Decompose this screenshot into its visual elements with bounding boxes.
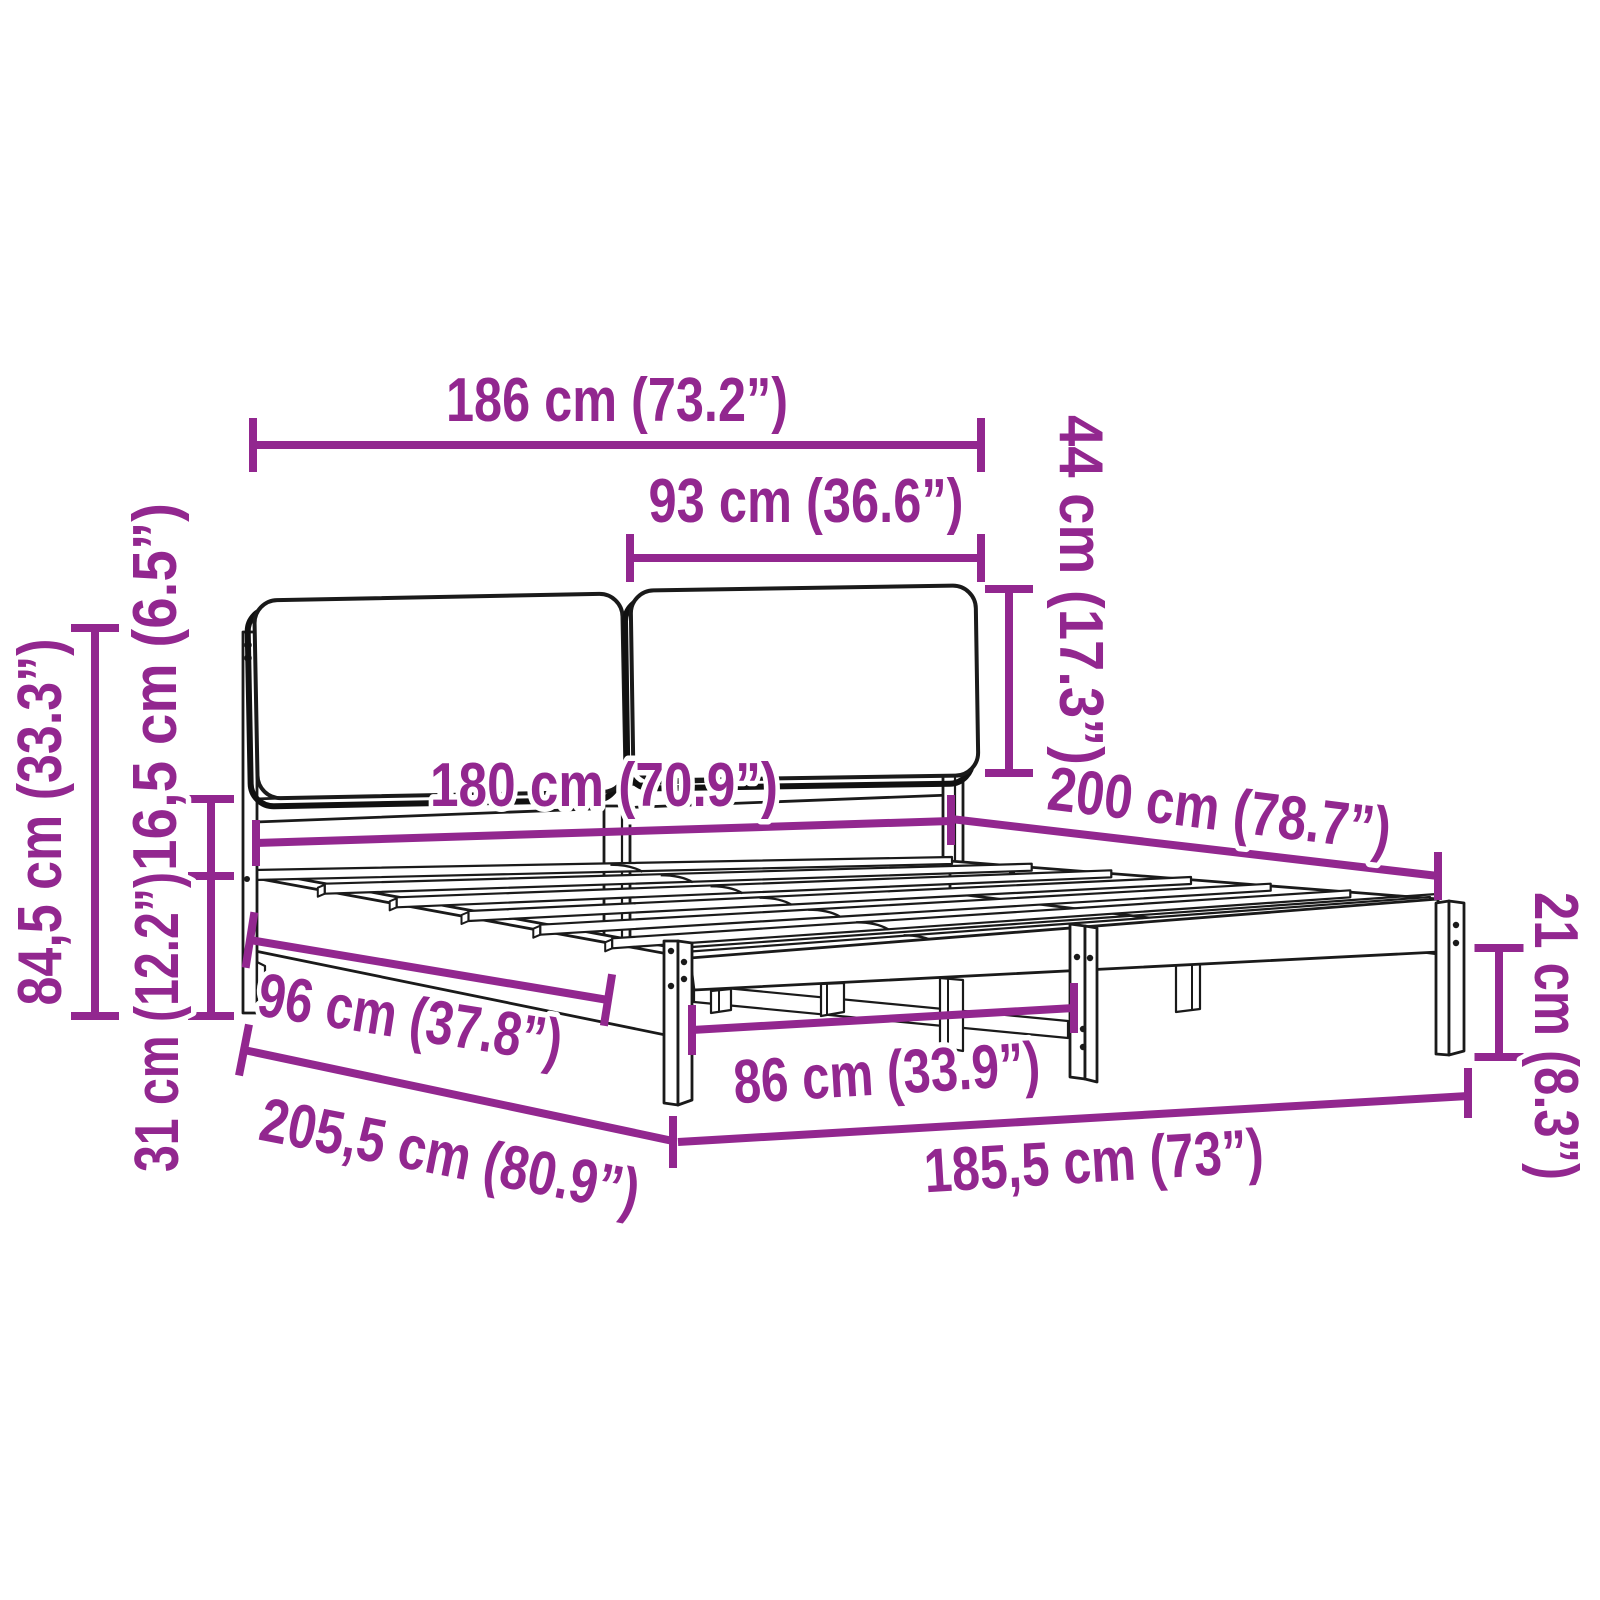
svg-text:93 cm (36.6”): 93 cm (36.6”) — [649, 467, 964, 536]
svg-text:16,5 cm (6.5”): 16,5 cm (6.5”) — [121, 503, 190, 871]
svg-text:186 cm (73.2”): 186 cm (73.2”) — [446, 366, 788, 435]
svg-text:84,5 cm (33.3”): 84,5 cm (33.3”) — [6, 639, 75, 1006]
svg-text:21 cm (8.3”): 21 cm (8.3”) — [1521, 892, 1590, 1180]
svg-text:31 cm (12.2”): 31 cm (12.2”) — [123, 872, 192, 1172]
svg-text:180 cm (70.9”): 180 cm (70.9”) — [430, 751, 778, 820]
svg-text:44 cm (17.3”): 44 cm (17.3”) — [1046, 415, 1115, 765]
